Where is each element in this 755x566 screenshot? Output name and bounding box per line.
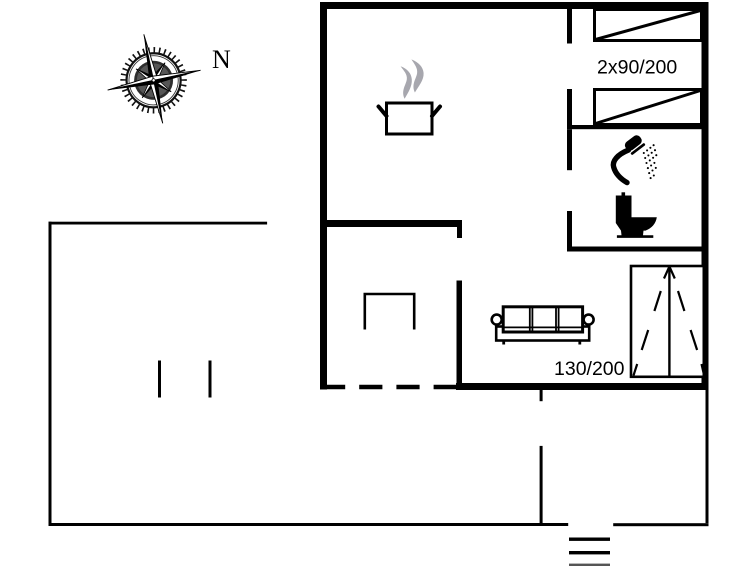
svg-text:130/200: 130/200 — [554, 358, 625, 380]
svg-text:N: N — [212, 45, 231, 74]
svg-text:2x90/200: 2x90/200 — [597, 57, 677, 79]
